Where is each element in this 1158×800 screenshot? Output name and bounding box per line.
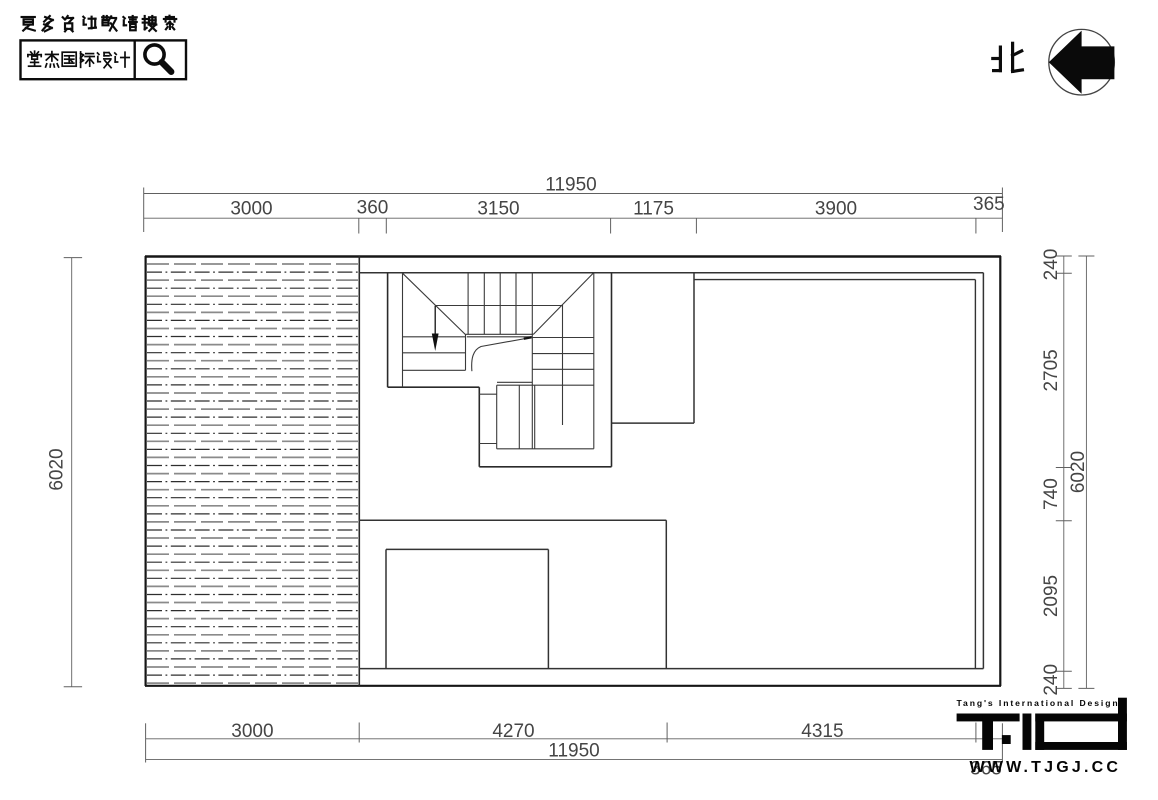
svg-text:360: 360 bbox=[357, 198, 389, 219]
svg-text:240: 240 bbox=[1041, 249, 1062, 281]
svg-text:WWW.TJGJ.CC: WWW.TJGJ.CC bbox=[970, 759, 1122, 776]
svg-text:240: 240 bbox=[1041, 664, 1062, 696]
svg-text:2705: 2705 bbox=[1041, 349, 1062, 391]
svg-text:2095: 2095 bbox=[1041, 575, 1062, 617]
svg-text:6020: 6020 bbox=[1068, 451, 1089, 493]
svg-text:4315: 4315 bbox=[801, 721, 843, 742]
svg-text:11950: 11950 bbox=[548, 740, 599, 761]
svg-text:365: 365 bbox=[973, 194, 1005, 215]
svg-text:3900: 3900 bbox=[815, 199, 857, 220]
svg-text:3000: 3000 bbox=[230, 199, 272, 220]
svg-text:3150: 3150 bbox=[477, 199, 519, 220]
svg-text:Tang's International Design: Tang's International Design bbox=[957, 698, 1120, 708]
svg-text:6020: 6020 bbox=[47, 448, 68, 490]
svg-text:11950: 11950 bbox=[545, 175, 596, 196]
svg-text:3000: 3000 bbox=[231, 721, 273, 742]
svg-text:1175: 1175 bbox=[633, 199, 674, 220]
svg-text:740: 740 bbox=[1041, 478, 1062, 510]
svg-text:4270: 4270 bbox=[492, 721, 534, 742]
